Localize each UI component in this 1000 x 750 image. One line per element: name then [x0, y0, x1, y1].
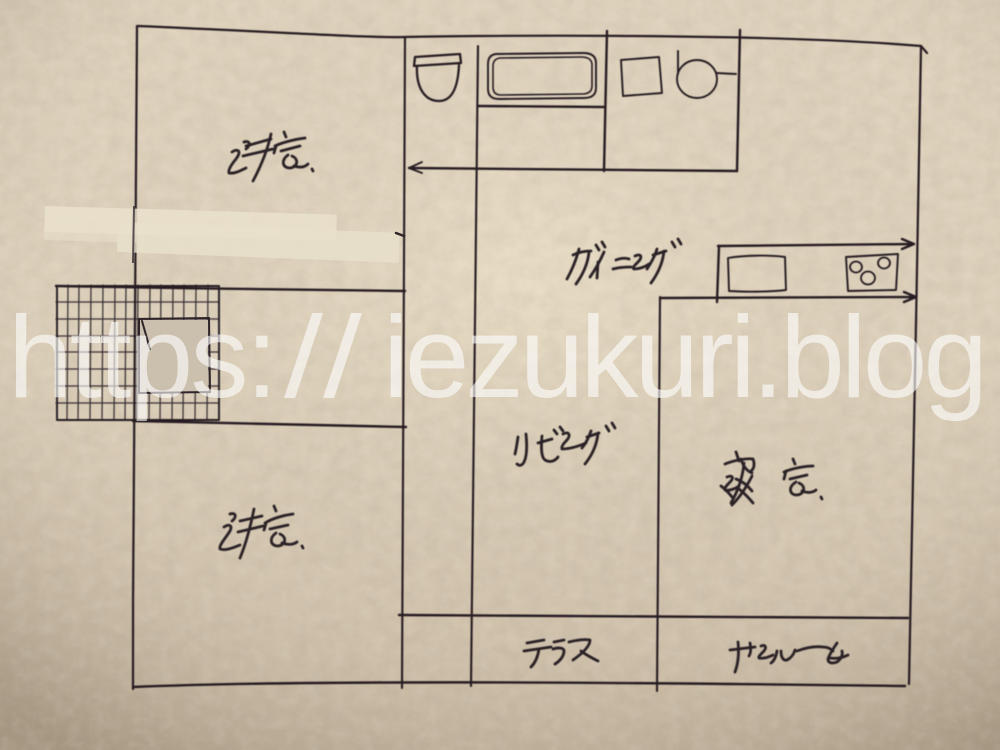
svg-text://: // [284, 292, 363, 422]
svg-text:https:: https: [8, 292, 278, 422]
svg-text:iezukuri.blog: iezukuri.blog [383, 292, 988, 422]
